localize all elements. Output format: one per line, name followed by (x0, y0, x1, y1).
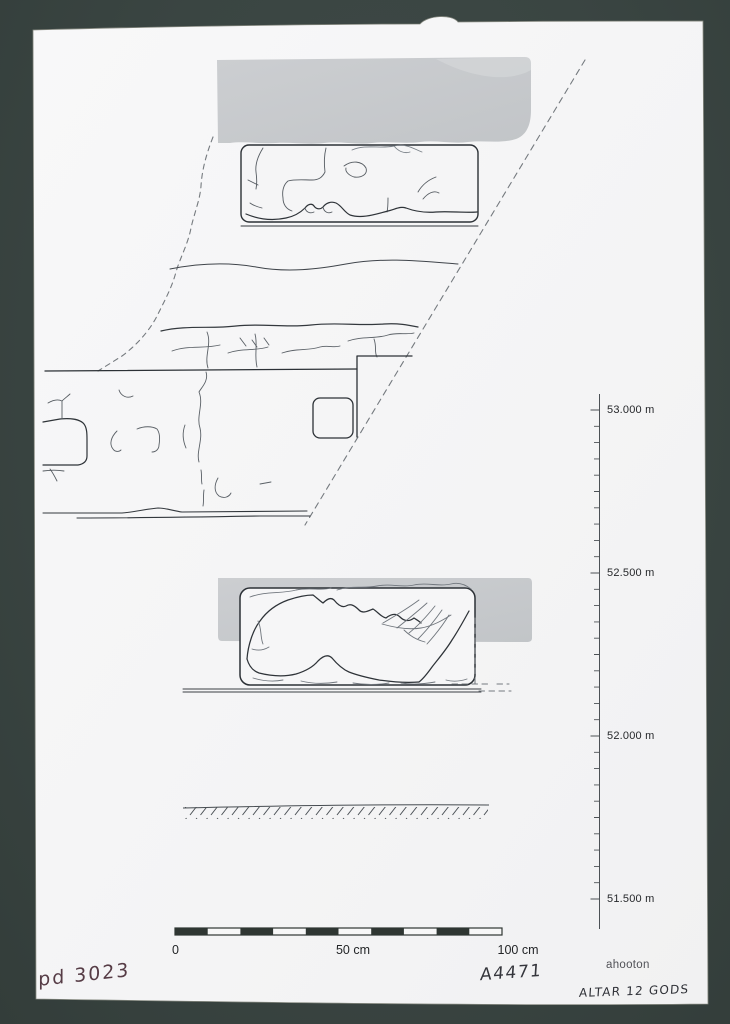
elevation-label-51500: 51.500 m (607, 892, 654, 906)
scanned-drawing-sheet: 53.000 m 52.500 m 52.000 m 51.500 m 0 50… (0, 0, 730, 1024)
elevation-label-52000: 52.000 m (607, 729, 654, 743)
author-name: ahooton (606, 959, 650, 971)
section-altar-block-outline (240, 588, 475, 685)
scale-bar-label-zero: 0 (172, 943, 179, 957)
scale-bar (175, 928, 502, 935)
scale-bar-label-100cm: 100 cm (498, 943, 539, 957)
elevation-label-52500: 52.500 m (607, 566, 654, 580)
elevation-label-53000: 53.000 m (607, 403, 654, 417)
scale-bar-label-50cm: 50 cm (336, 943, 370, 957)
plan-altar-block-outline (241, 145, 478, 222)
altar-drawing (0, 0, 730, 1024)
